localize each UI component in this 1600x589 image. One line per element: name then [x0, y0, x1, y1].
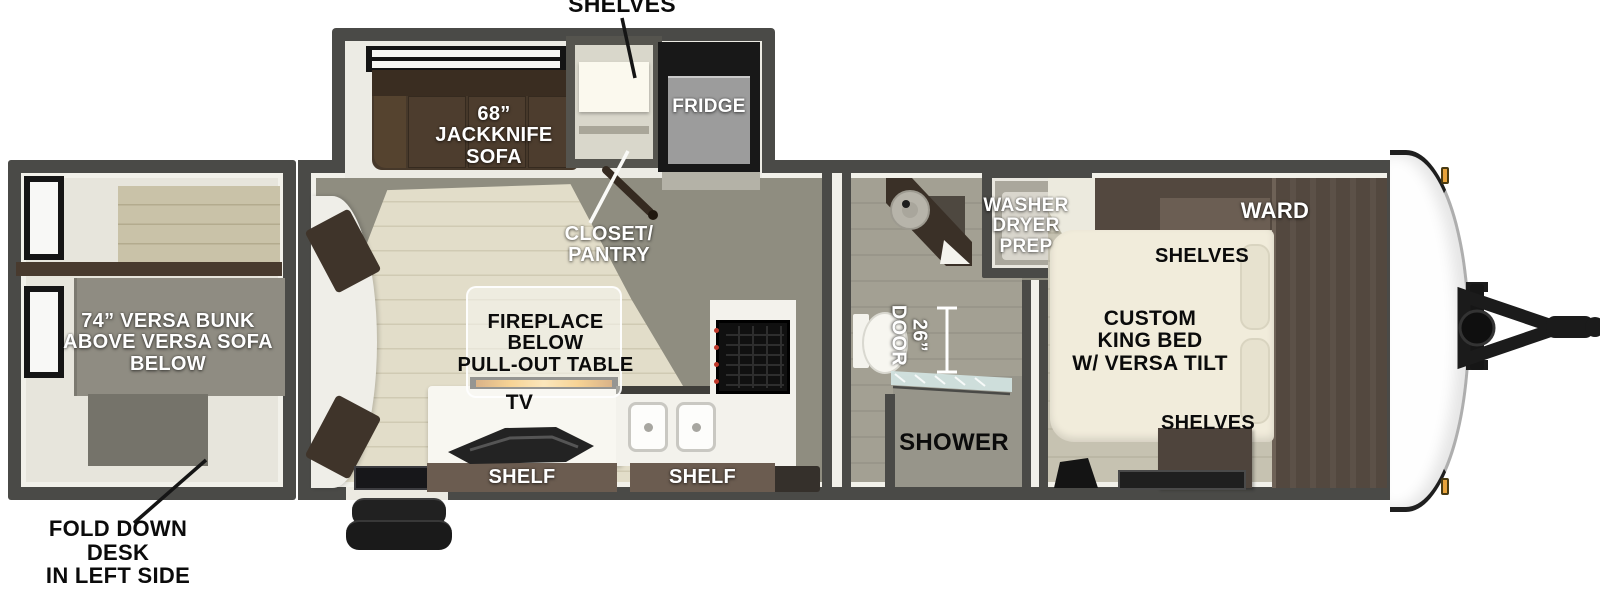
label-shower: SHOWER	[893, 430, 1015, 456]
stove	[716, 320, 790, 394]
label-fold-down-desk: FOLD DOWN DESK IN LEFT SIDE REAR BED	[18, 517, 218, 589]
counter-backsplash	[616, 386, 716, 394]
label-shelf-left: SHELF	[427, 467, 617, 488]
label-door-width: 26” DOOR	[887, 303, 930, 367]
sofa-chaise	[374, 96, 406, 168]
window-pane	[372, 50, 560, 57]
label-jackknife-sofa: 68” JACKKNIFE SOFA	[410, 104, 578, 168]
partition-wall	[822, 173, 832, 487]
sink-drain	[692, 423, 701, 432]
sink-left	[628, 402, 668, 452]
partition-wall	[1022, 280, 1031, 487]
rear-window-icon	[24, 176, 64, 260]
label-washer-dryer-prep: WASHER DRYER PREP	[976, 196, 1076, 257]
closet-shelf	[579, 62, 649, 112]
label-tv: TV	[497, 392, 542, 414]
label-fridge: FRIDGE	[660, 97, 758, 117]
slideout-window	[366, 46, 566, 72]
partition-wall	[842, 173, 851, 487]
stove-knob	[714, 328, 719, 333]
fold-down-desk-area	[88, 394, 208, 466]
stove-knob	[714, 362, 719, 367]
window-pane	[372, 61, 560, 68]
label-shelves-lower: SHELVES	[1144, 413, 1272, 434]
bedroom-floor-mat	[1118, 470, 1246, 490]
marker-light-top	[1441, 167, 1449, 184]
label-fireplace-table: FIREPLACE BELOW PULL-OUT TABLE	[448, 312, 643, 376]
sink-right	[676, 402, 716, 452]
upper-bunk	[118, 186, 280, 266]
front-cap	[1390, 150, 1470, 512]
stove-knob	[714, 345, 719, 350]
floorplan-canvas: SHELVES FOLD DOWN DESK IN LEFT SIDE REAR…	[0, 0, 1600, 589]
label-closet-pantry: CLOSET/ PANTRY	[550, 224, 668, 267]
fridge-counter	[662, 172, 760, 190]
partition-gap	[832, 173, 842, 487]
wardrobe-side	[1272, 178, 1387, 488]
sofa-backrest	[372, 70, 578, 96]
closet-shelf-edge	[579, 126, 649, 134]
label-overhead-shelves: SHELVES	[552, 0, 692, 17]
hitch	[1460, 282, 1600, 370]
bunk-ledge	[16, 262, 282, 276]
partition-wall	[1039, 280, 1048, 487]
sink-drain	[644, 423, 653, 432]
label-shelf-right: SHELF	[630, 467, 775, 488]
label-wardrobe: WARD	[1216, 199, 1334, 223]
rear-window-icon	[24, 286, 64, 378]
fridge-front	[668, 76, 750, 164]
burner-grate	[726, 326, 784, 388]
marker-light-bottom	[1441, 478, 1449, 495]
label-versa-bunk: 74” VERSA BUNK ABOVE VERSA SOFA BELOW	[62, 311, 274, 375]
entry-step	[346, 520, 452, 550]
label-king-bed: CUSTOM KING BED W/ VERSA TILT	[1052, 308, 1248, 375]
label-shelves-upper: SHELVES	[1138, 246, 1266, 267]
stove-knob	[714, 379, 719, 384]
partition-gap	[1031, 280, 1039, 487]
